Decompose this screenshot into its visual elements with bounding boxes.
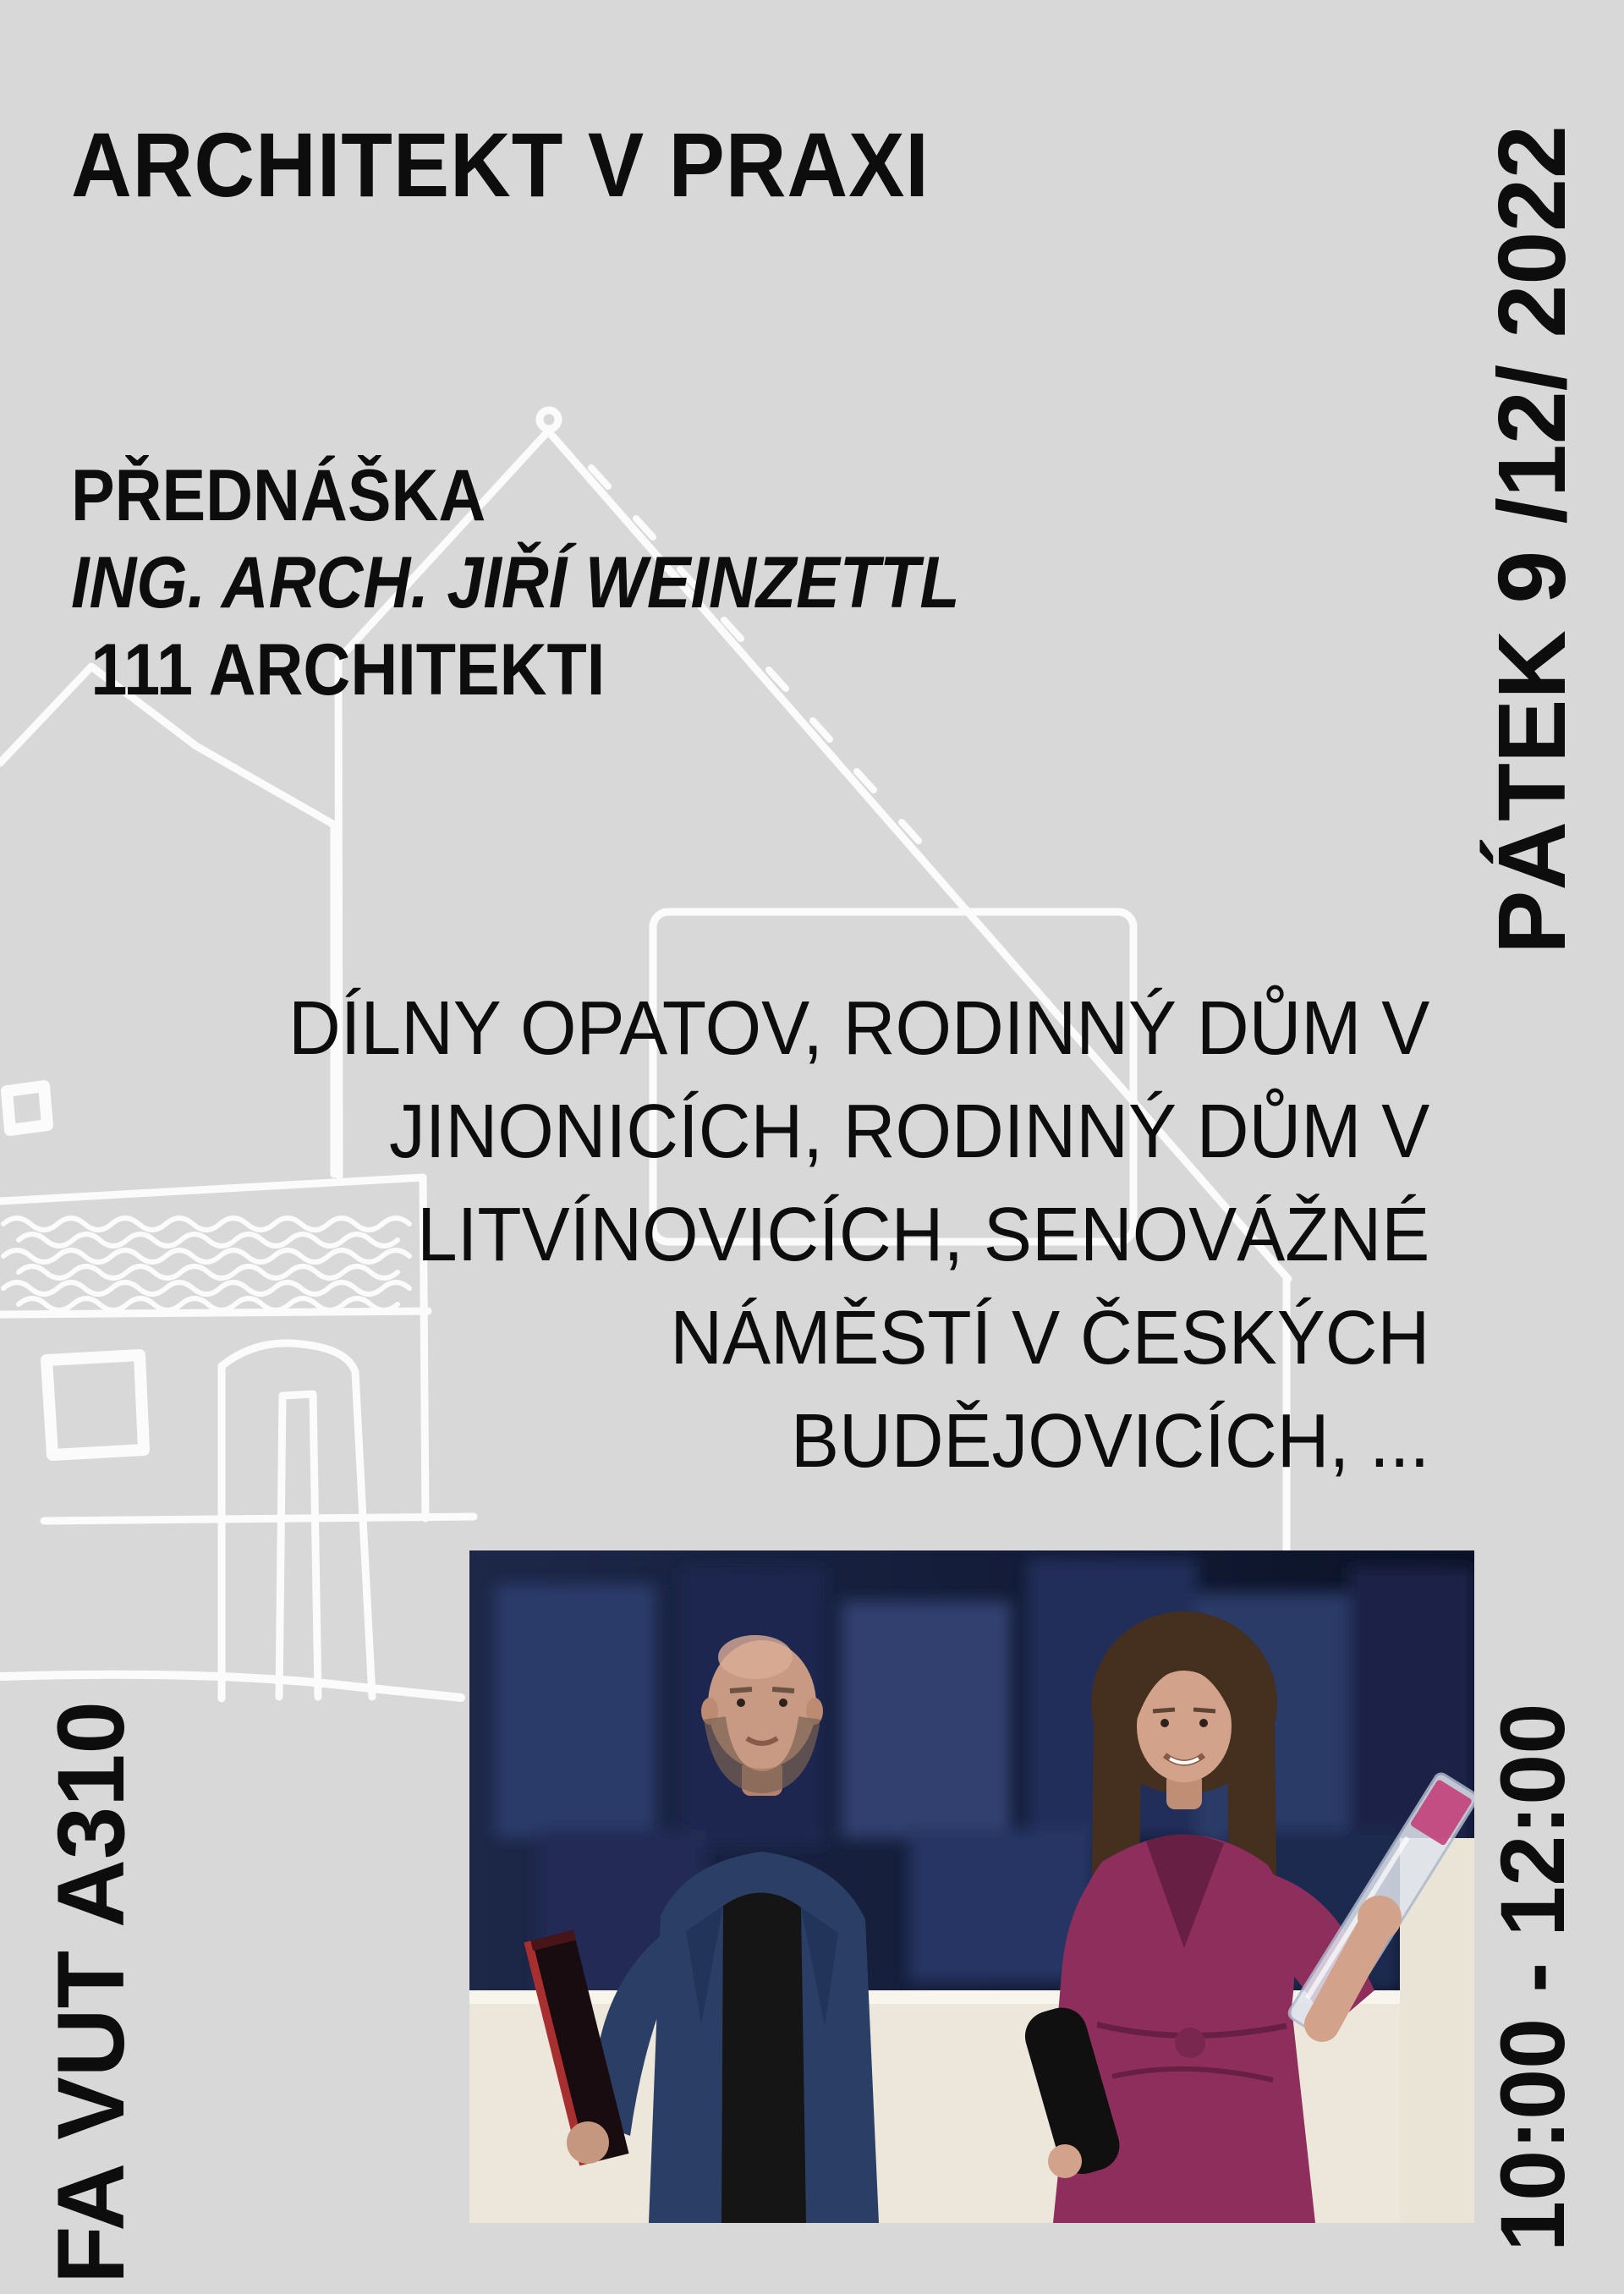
lecture-speaker: ING. ARCH. JIŘÍ WEINZETTL	[71, 540, 960, 627]
works-line: BUDĚJOVICÍCH, ...	[288, 1390, 1429, 1493]
man-hand	[567, 2121, 609, 2164]
venue-room-vertical: FA VUT A310	[37, 1701, 146, 2284]
sketch-ground-line	[0, 1675, 461, 1698]
works-line: LITVÍNOVICÍCH, SENOVÁŽNÉ	[288, 1183, 1429, 1287]
lecture-poster: ARCHITEKT V PRAXI PŘEDNÁŠKA ING. ARCH. J…	[0, 0, 1624, 2294]
event-time-vertical: 10:00 - 12:00	[1480, 1704, 1585, 2252]
sketch-barn-window	[47, 1355, 144, 1455]
woman-hand	[1358, 1896, 1402, 1940]
works-line: DÍLNY OPATOV, RODINNÝ DŮM V	[288, 977, 1429, 1080]
photo-architects	[469, 1550, 1474, 2223]
works-list: DÍLNY OPATOV, RODINNÝ DŮM V JINONICÍCH, …	[288, 977, 1429, 1493]
lecture-studio: 111 ARCHITEKTI	[71, 627, 960, 714]
lecture-block: PŘEDNÁŠKA ING. ARCH. JIŘÍ WEINZETTL 111 …	[71, 453, 960, 714]
lecture-label: PŘEDNÁŠKA	[71, 453, 960, 540]
works-line: NÁMĚSTÍ V ČESKÝCH	[288, 1287, 1429, 1390]
sketch-small-window	[7, 1086, 47, 1130]
man-tshirt	[721, 1892, 806, 2223]
works-line: JINONICÍCH, RODINNÝ DŮM V	[288, 1080, 1429, 1183]
sketch-roof-finial	[540, 410, 558, 429]
poster-title: ARCHITEKT V PRAXI	[71, 112, 930, 217]
sketch-small-house	[0, 667, 334, 1174]
event-date-vertical: PÁTEK 9 /12/ 2022	[1478, 125, 1588, 954]
